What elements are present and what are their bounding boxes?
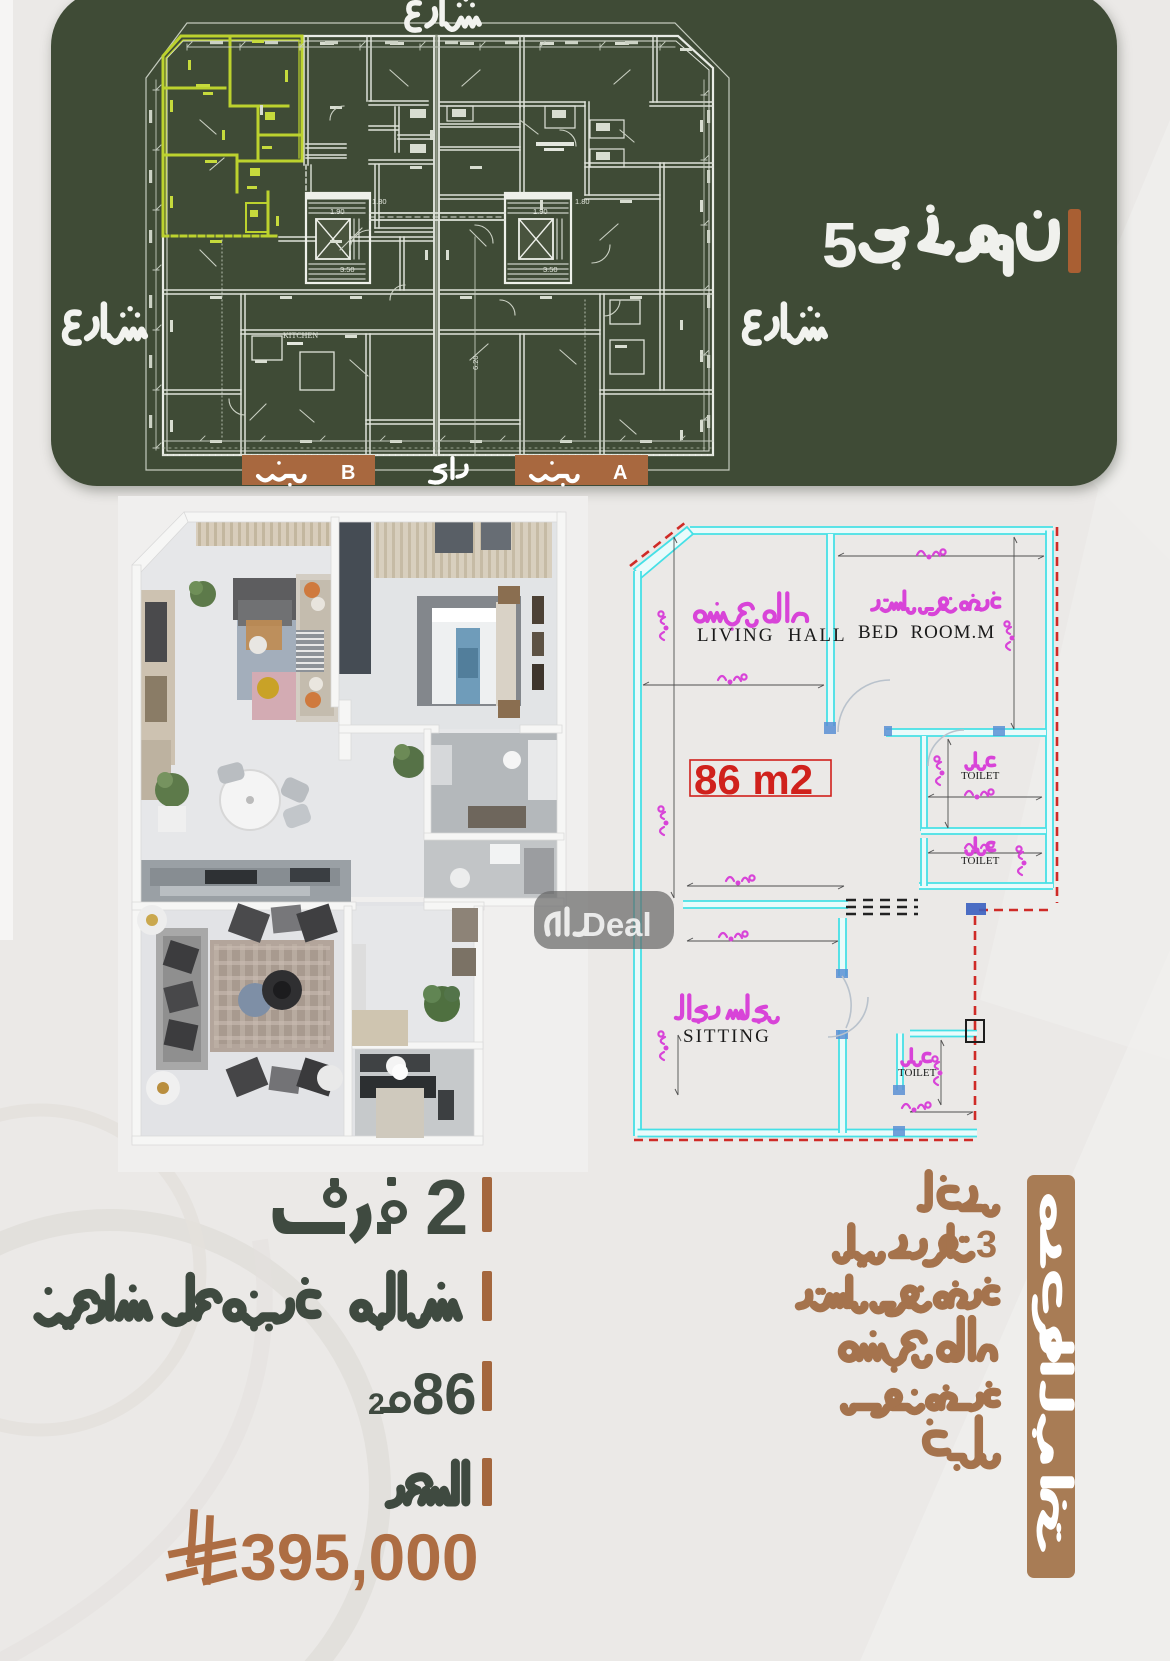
svg-text:3.50: 3.50 [543,265,558,274]
svg-text:2: 2 [368,1388,385,1421]
svg-text:Deal: Deal [582,906,652,943]
svg-text:KITCHEN: KITCHEN [283,331,318,340]
svg-text:A: A [613,462,627,484]
svg-text:LIVING HALL: LIVING HALL [697,625,847,646]
svg-text:1.80: 1.80 [575,197,590,206]
svg-text:BED ROOM.M: BED ROOM.M [858,622,995,643]
svg-text:TOILET: TOILET [898,1067,937,1079]
svg-text:1.90: 1.90 [330,207,345,216]
svg-text:86: 86 [412,1362,477,1427]
svg-text:SITTING: SITTING [683,1026,771,1047]
svg-text:1.80: 1.80 [372,197,387,206]
svg-text:6.20: 6.20 [471,355,480,370]
svg-text:1.90: 1.90 [533,207,548,216]
svg-text:2: 2 [425,1163,468,1251]
svg-text:395,000: 395,000 [240,1520,479,1594]
svg-text:5: 5 [822,209,858,281]
svg-text:3.50: 3.50 [340,265,355,274]
svg-text:B: B [341,462,355,484]
svg-text:TOILET: TOILET [961,855,1000,867]
svg-text:86 m2: 86 m2 [694,756,813,803]
svg-text:TOILET: TOILET [961,770,1000,782]
svg-text:3: 3 [976,1224,997,1266]
